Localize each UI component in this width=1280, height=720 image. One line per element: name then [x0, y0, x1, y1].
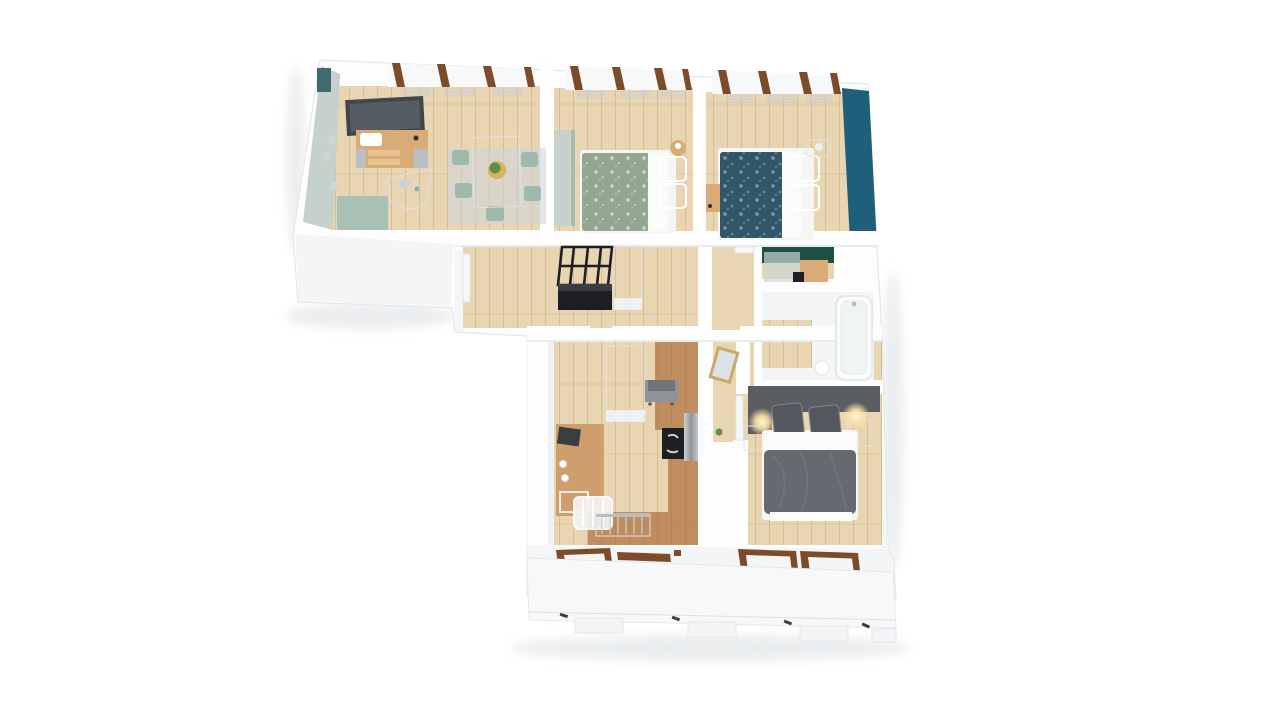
sideboard-drawer	[368, 159, 400, 165]
table-lamp	[815, 143, 823, 151]
shadow-balcony	[510, 635, 910, 661]
tv-screen	[349, 100, 420, 132]
sideboard-pad	[360, 133, 382, 146]
wall-bedroom-left	[733, 440, 748, 545]
corridor-door-leaf	[735, 247, 754, 253]
gray-stove	[645, 380, 678, 406]
plant-leaves	[490, 163, 501, 174]
chair	[521, 152, 538, 167]
sideboard-side	[414, 149, 428, 168]
desk-laptop	[557, 427, 581, 447]
wall-corridor-wc	[754, 243, 762, 386]
room-bedroom-teal	[706, 140, 830, 240]
face-middle-left	[455, 250, 463, 332]
sconce	[323, 153, 332, 162]
shadow-midband-wall	[527, 340, 882, 342]
bath-sink	[815, 361, 829, 375]
sconce	[328, 136, 337, 145]
chair	[486, 206, 504, 221]
desk-cup	[560, 461, 567, 468]
shadow-topband-wall	[455, 245, 878, 247]
wc-vanity	[800, 260, 828, 282]
chair	[452, 150, 469, 165]
chair	[524, 186, 541, 201]
hallway-door-leaf	[463, 254, 470, 302]
sideboard-knob	[414, 136, 419, 141]
wall-midband-south-b	[612, 326, 712, 342]
duvet-gray	[764, 450, 856, 514]
closet-face	[606, 410, 645, 422]
shadow-living-left	[548, 342, 554, 545]
sheet-fold	[648, 153, 668, 231]
railing-tab	[575, 618, 623, 633]
sideboard-drawer	[368, 150, 400, 156]
bathtub-faucet	[852, 302, 857, 307]
wall-topband-south	[455, 231, 878, 247]
bed-navy	[718, 148, 819, 240]
sideboard-side	[356, 149, 366, 168]
corridor-plant	[716, 429, 723, 436]
bedroom-door-leaf	[736, 396, 743, 440]
office-chair	[574, 497, 612, 529]
window-notch	[674, 550, 681, 556]
glass-bedroom-green	[565, 66, 688, 90]
duvet-texture	[582, 153, 652, 231]
bassinet-pad	[399, 180, 411, 187]
wood-side-table	[706, 184, 720, 212]
glass-dining	[388, 63, 535, 87]
chair	[455, 183, 472, 198]
wall-bedrooms	[693, 84, 706, 238]
floor-corridor-top	[712, 247, 754, 330]
wall-lamp-glow	[842, 402, 870, 430]
bed-skirt	[770, 512, 852, 521]
rack-cabinet-top	[558, 284, 612, 291]
closet-face	[614, 298, 642, 310]
teal-bench	[337, 196, 388, 230]
railing-tab	[872, 629, 896, 642]
desk-cup	[562, 475, 569, 482]
face-kitchen-south-wall	[295, 234, 453, 307]
stove-foot	[670, 402, 674, 406]
bassinet-dot	[415, 187, 420, 192]
railing-tab	[800, 626, 848, 641]
glass-bedroom-teal	[712, 70, 840, 94]
wall-hall-corridor	[698, 243, 712, 332]
stool-vase	[675, 143, 681, 149]
stove-top	[648, 380, 675, 391]
wall-wc-right	[834, 243, 843, 292]
railing-tab	[688, 622, 736, 637]
teal-corner-patch	[317, 68, 331, 92]
side-table-knob	[708, 204, 712, 208]
bathtub-inner	[841, 301, 867, 374]
floorplan-scene	[0, 0, 1280, 720]
black-cooktop	[662, 428, 686, 459]
stove-foot	[648, 402, 652, 406]
wooden-sideboard	[356, 130, 428, 168]
sage-wardrobe-edge	[571, 130, 575, 226]
radiator-top	[596, 514, 650, 517]
bed-green	[580, 150, 686, 233]
stainless-unit	[684, 413, 698, 461]
duvet-texture	[720, 152, 786, 238]
balcony	[527, 558, 896, 642]
wc-black-item	[793, 272, 804, 282]
wall-corridor-bedroom-stub	[736, 342, 750, 394]
sconce	[330, 182, 339, 191]
